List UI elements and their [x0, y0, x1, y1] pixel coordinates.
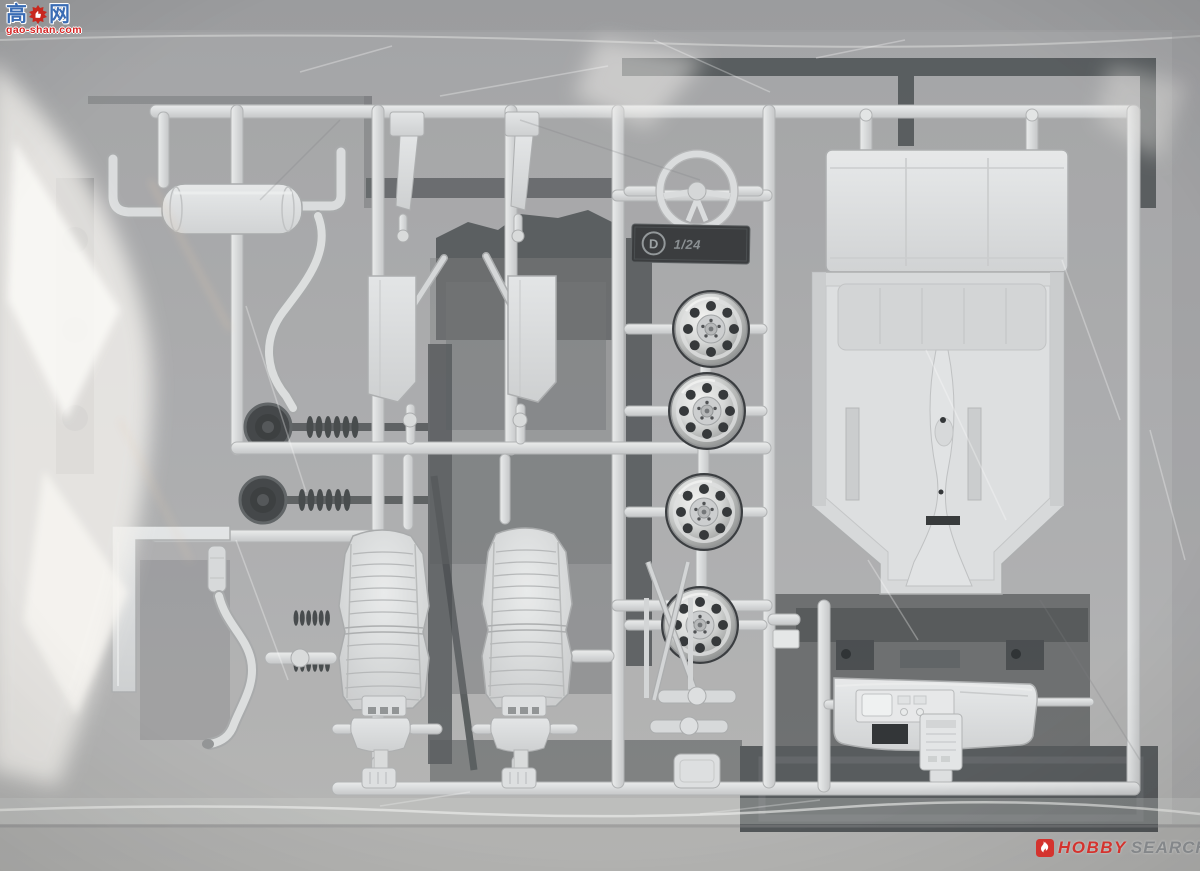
watermark-domain-text: gao-shan.com [6, 25, 82, 36]
bag-glare [0, 0, 1200, 871]
watermark-char-right: 网 [49, 4, 70, 25]
watermark-gao-shan: 高 网 gao-shan.com [6, 4, 82, 36]
watermark-hobby-search: HOBBY SEARCH [1036, 838, 1200, 858]
photo-canvas: D 1/24 [0, 0, 1200, 871]
watermark-char-left: 高 [6, 4, 27, 25]
product-photo-model-kit-sprue-bag: D 1/24 [0, 0, 1200, 871]
watermark-gao-shan-row: 高 网 [6, 4, 82, 25]
brand-word-search: SEARCH [1131, 838, 1200, 858]
flame-icon [1036, 839, 1054, 857]
brand-word-hobby: HOBBY [1058, 838, 1127, 858]
gear-thumb-icon [28, 5, 48, 25]
